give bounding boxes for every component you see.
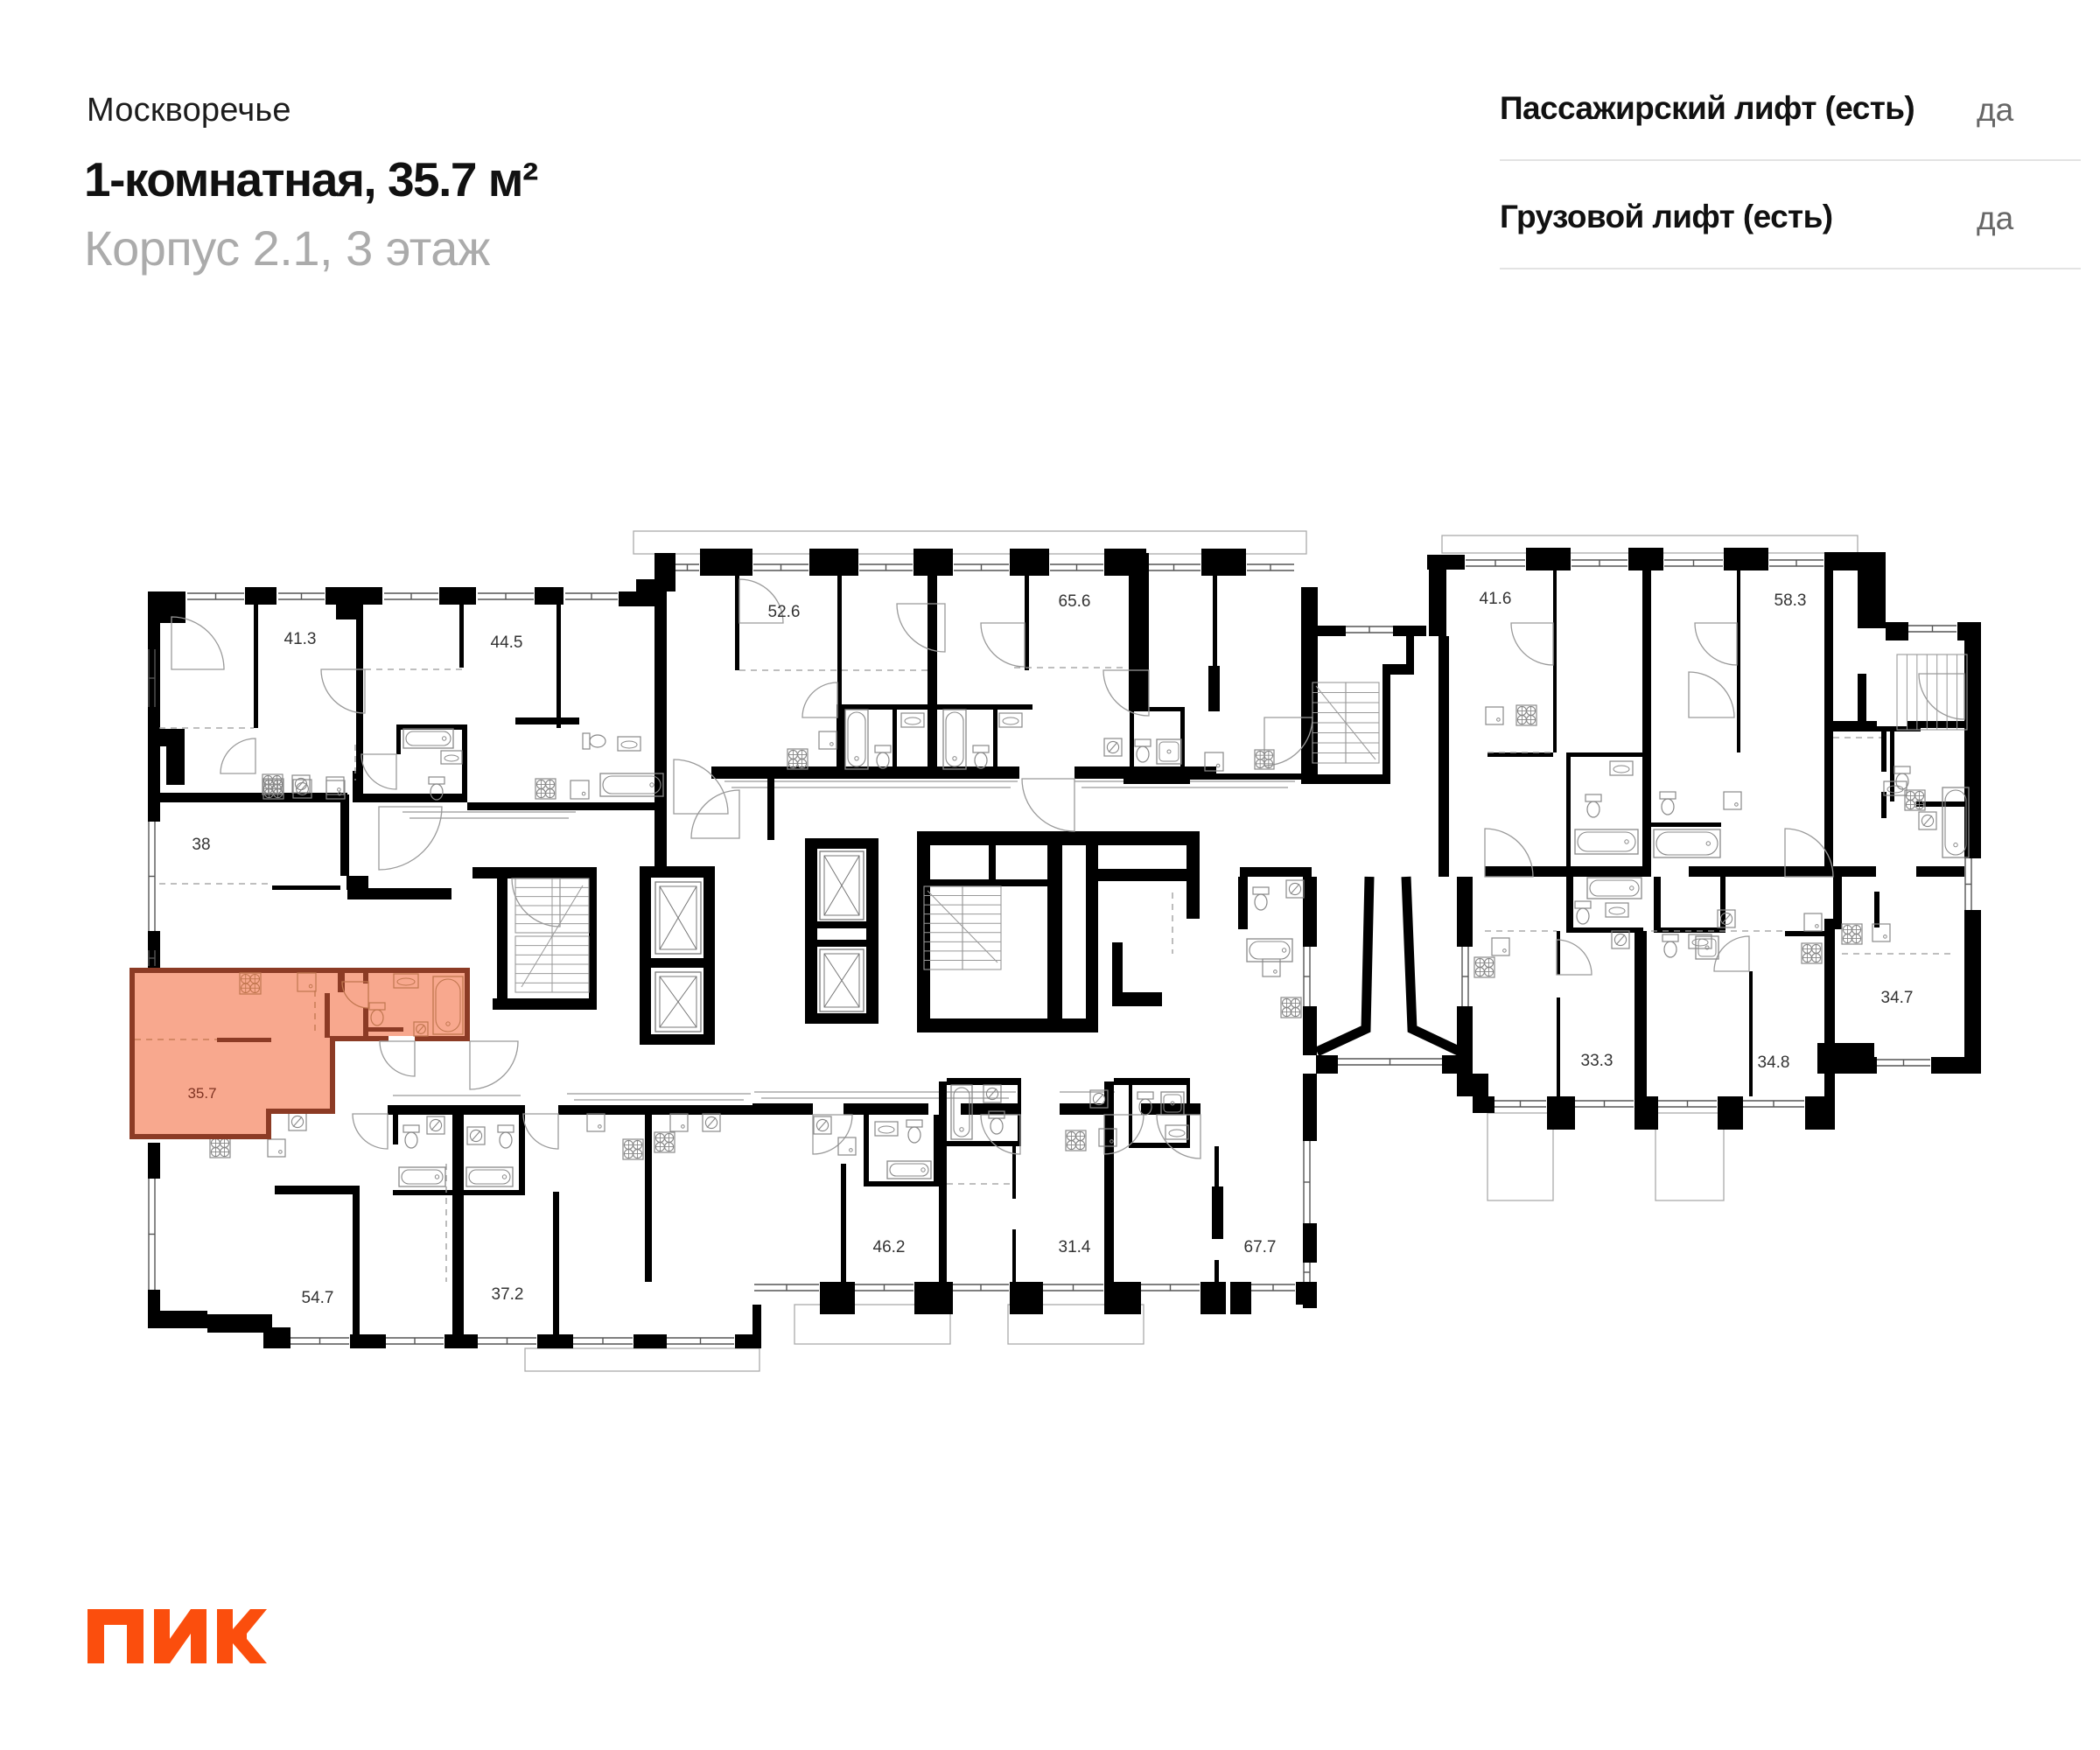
svg-text:54.7: 54.7 xyxy=(302,1289,334,1307)
svg-text:34.7: 34.7 xyxy=(1881,989,1914,1007)
svg-text:41.6: 41.6 xyxy=(1480,590,1512,608)
svg-text:58.3: 58.3 xyxy=(1774,591,1807,610)
svg-text:65.6: 65.6 xyxy=(1059,592,1091,611)
svg-text:31.4: 31.4 xyxy=(1059,1238,1091,1256)
svg-text:52.6: 52.6 xyxy=(768,603,801,621)
svg-text:41.3: 41.3 xyxy=(284,630,317,648)
svg-text:35.7: 35.7 xyxy=(187,1085,216,1102)
svg-text:46.2: 46.2 xyxy=(873,1238,906,1256)
svg-text:34.8: 34.8 xyxy=(1758,1053,1790,1072)
svg-text:67.7: 67.7 xyxy=(1244,1238,1277,1256)
svg-text:38: 38 xyxy=(192,836,210,854)
svg-text:33.3: 33.3 xyxy=(1581,1052,1613,1070)
svg-text:37.2: 37.2 xyxy=(492,1285,524,1304)
svg-text:44.5: 44.5 xyxy=(491,633,523,652)
